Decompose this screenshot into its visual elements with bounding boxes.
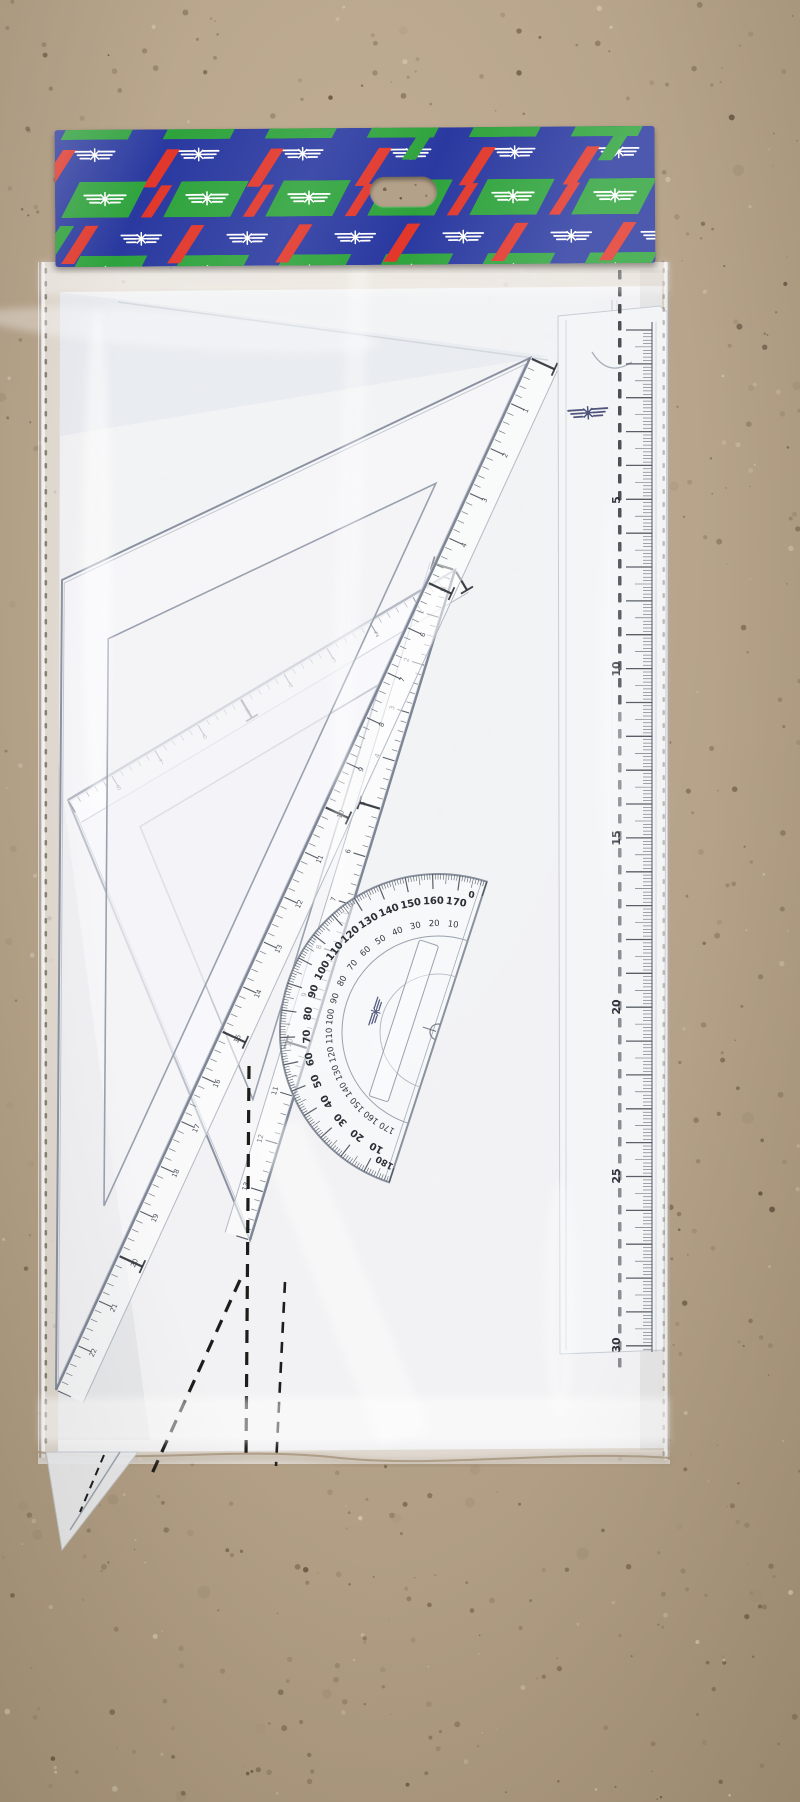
bag-perforation <box>45 983 48 989</box>
bag-perforation <box>45 1347 48 1353</box>
wing-star-logo <box>639 226 655 246</box>
wing-star-logo <box>441 227 485 247</box>
bag-perforation <box>45 1360 48 1366</box>
bag-perforation <box>45 554 48 560</box>
bag-perforation <box>45 476 48 482</box>
bag-perforation <box>45 1256 48 1262</box>
bag-perforation <box>45 827 48 833</box>
bag-perforation <box>45 853 48 859</box>
header-card-pattern <box>55 126 656 267</box>
bag-perforation <box>45 359 48 365</box>
bag-perforation <box>45 1048 48 1054</box>
wing-star-logo <box>82 264 128 268</box>
wing-star-logo <box>549 226 593 246</box>
bag-perforation <box>45 619 48 625</box>
bag-perforation <box>45 814 48 820</box>
bag-perforation <box>45 593 48 599</box>
svg-text:20: 20 <box>429 919 440 929</box>
bag-perforation <box>45 1295 48 1301</box>
svg-text:10: 10 <box>447 919 459 930</box>
bag-perforation <box>45 528 48 534</box>
bag-perforation <box>45 346 48 352</box>
bag-perforation <box>45 1373 48 1379</box>
bag-perforation <box>45 1022 48 1028</box>
wing-star-logo <box>286 188 332 208</box>
package-contents: 1234567812345678910111213123456789101112… <box>0 0 800 1802</box>
bag-perforation <box>45 1178 48 1184</box>
triangle-tip <box>46 1452 138 1550</box>
bag-perforation <box>45 489 48 495</box>
wing-star-logo <box>493 143 537 163</box>
bag-perforation <box>45 411 48 417</box>
bag-perforation <box>45 580 48 586</box>
wing-star-logo <box>177 145 221 165</box>
wing-star-logo <box>333 228 377 248</box>
wing-star-logo <box>281 144 325 164</box>
bag-perforation <box>45 1282 48 1288</box>
bag-perforation <box>45 840 48 846</box>
bag-perforation <box>45 1009 48 1015</box>
bag-perforation <box>45 879 48 885</box>
bag-perforation <box>45 1308 48 1314</box>
bag-perforation <box>45 1191 48 1197</box>
bag-perforation <box>45 892 48 898</box>
bag-perforation <box>45 567 48 573</box>
bag-perforation <box>45 450 48 456</box>
bag-perforation <box>45 372 48 378</box>
svg-text:160: 160 <box>423 896 444 908</box>
bag-perforation <box>45 437 48 443</box>
bag-perforation <box>45 918 48 924</box>
bag-perforation <box>45 1100 48 1106</box>
bag-perforation <box>45 541 48 547</box>
bag-perforation <box>45 645 48 651</box>
bag-perforation <box>45 658 48 664</box>
bag-perforation <box>45 1217 48 1223</box>
bag-perforation <box>45 1152 48 1158</box>
bag-perforation <box>45 1113 48 1119</box>
bag-perforation <box>45 463 48 469</box>
bag-perforation <box>45 710 48 716</box>
bag-perforation <box>45 1269 48 1275</box>
bag-perforation <box>45 1139 48 1145</box>
bag-perforation <box>45 762 48 768</box>
wing-star-logo <box>119 229 163 249</box>
wing-star-logo <box>592 186 638 206</box>
bag-perforation <box>45 931 48 937</box>
bag-perforation <box>45 957 48 963</box>
bag-perforation <box>45 801 48 807</box>
svg-text:70: 70 <box>302 1029 313 1043</box>
wing-star-logo <box>490 187 536 207</box>
bag-perforation <box>45 775 48 781</box>
bag-perforation <box>45 515 48 521</box>
bag-perforation <box>45 684 48 690</box>
bag-perforation <box>45 866 48 872</box>
svg-text:110: 110 <box>325 1028 336 1045</box>
wing-star-logo <box>82 190 128 210</box>
bag-perforation <box>45 398 48 404</box>
bag-perforation <box>45 697 48 703</box>
product-photo: 1234567812345678910111213123456789101112… <box>0 0 800 1802</box>
bag-perforation <box>45 996 48 1002</box>
bag-perforation <box>45 1061 48 1067</box>
bag-perforation <box>45 970 48 976</box>
bag-perforation <box>45 944 48 950</box>
bag-perforation <box>45 723 48 729</box>
bag-perforation <box>45 788 48 794</box>
bag-perforation <box>45 606 48 612</box>
bag-perforation <box>45 1204 48 1210</box>
bag-perforation <box>45 502 48 508</box>
bag-perforation <box>45 1126 48 1132</box>
bag-perforation <box>45 1334 48 1340</box>
bag-perforation <box>45 385 48 391</box>
header-card <box>55 126 656 267</box>
wing-star-logo <box>73 146 117 166</box>
bag-perforation <box>45 424 48 430</box>
bag-perforation <box>45 671 48 677</box>
bag-perforation <box>45 294 48 300</box>
bag-perforation <box>45 749 48 755</box>
hang-hole <box>370 176 437 206</box>
bag-perforation <box>45 1087 48 1093</box>
bag-perforation <box>45 1230 48 1236</box>
bag-perforation <box>45 632 48 638</box>
wing-star-logo <box>225 229 269 249</box>
wing-star-logo <box>489 126 535 129</box>
svg-text:80: 80 <box>302 1006 315 1021</box>
wing-star-logo <box>184 189 230 209</box>
bag-bottom <box>38 1452 670 1550</box>
bag-perforation <box>45 1074 48 1080</box>
bag-perforation <box>45 1386 48 1392</box>
bag-perforation <box>45 1321 48 1327</box>
bag-perforation <box>45 1165 48 1171</box>
bag-perforation <box>45 736 48 742</box>
bag-perforation <box>45 905 48 911</box>
bag-perforation <box>45 1243 48 1249</box>
bag-perforation <box>45 1035 48 1041</box>
